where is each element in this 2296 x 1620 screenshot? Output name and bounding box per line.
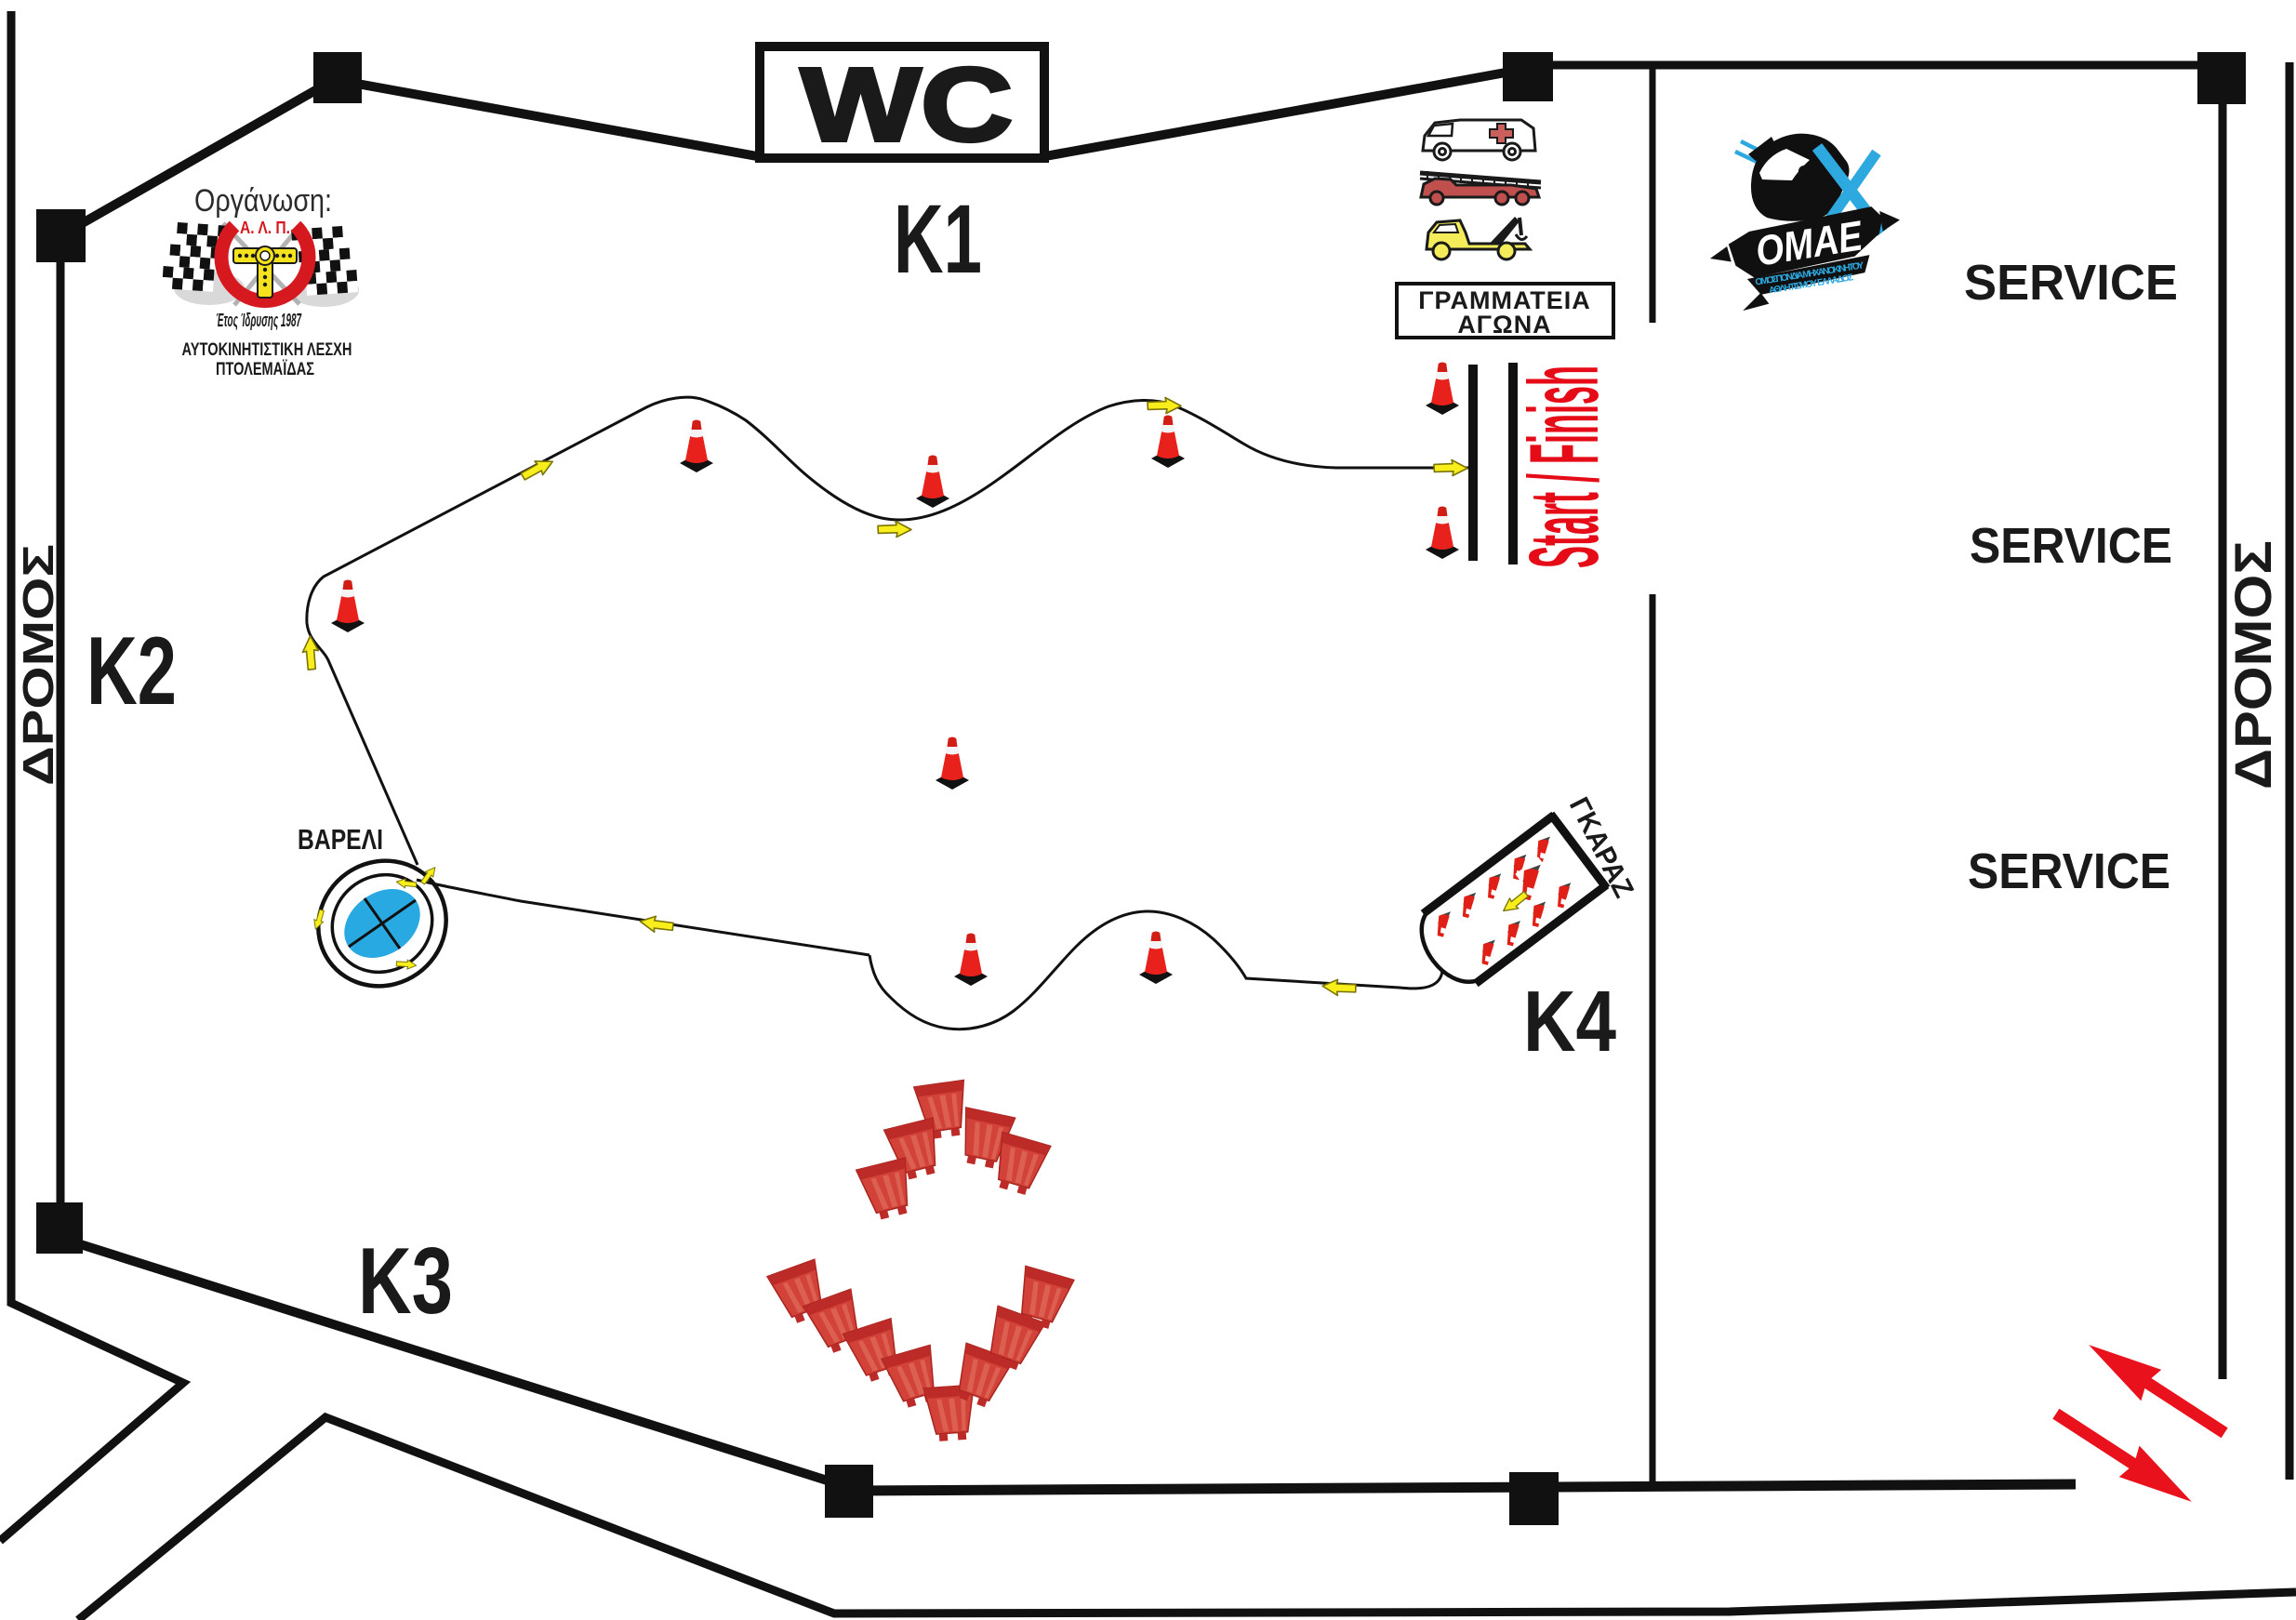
svg-text:ΔΡΟΜΟΣ: ΔΡΟΜΟΣ xyxy=(2223,540,2282,790)
svg-text:ΔΡΟΜΟΣ: ΔΡΟΜΟΣ xyxy=(14,544,62,786)
svg-text:ΑΓΩΝΑ: ΑΓΩΝΑ xyxy=(1457,311,1551,339)
svg-text:Start / Finish: Start / Finish xyxy=(1509,365,1619,568)
svg-text:ΒΑΡΕΛΙ: ΒΑΡΕΛΙ xyxy=(298,823,383,856)
svg-text:K4: K4 xyxy=(1523,973,1616,1069)
svg-text:Έτος Ίδρυσης 1987: Έτος Ίδρυσης 1987 xyxy=(216,311,301,331)
svg-text:ΠΤΟΛΕΜΑΪΔΑΣ: ΠΤΟΛΕΜΑΪΔΑΣ xyxy=(216,360,314,379)
svg-text:SERVICE: SERVICE xyxy=(1968,843,2170,899)
svg-text:K2: K2 xyxy=(86,617,177,725)
svg-text:SERVICE: SERVICE xyxy=(1970,518,2172,574)
svg-text:Α. Λ. Π.: Α. Λ. Π. xyxy=(240,219,290,237)
svg-text:K3: K3 xyxy=(358,1229,453,1334)
svg-text:Οργάνωση:: Οργάνωση: xyxy=(194,183,332,219)
svg-text:ΑΥΤΟΚΙΝΗΤΙΣΤΙΚΗ ΛΕΣΧΗ: ΑΥΤΟΚΙΝΗΤΙΣΤΙΚΗ ΛΕΣΧΗ xyxy=(182,340,352,360)
svg-text:SERVICE: SERVICE xyxy=(1964,255,2178,311)
svg-text:WC: WC xyxy=(801,46,1013,163)
svg-text:K1: K1 xyxy=(894,185,982,294)
